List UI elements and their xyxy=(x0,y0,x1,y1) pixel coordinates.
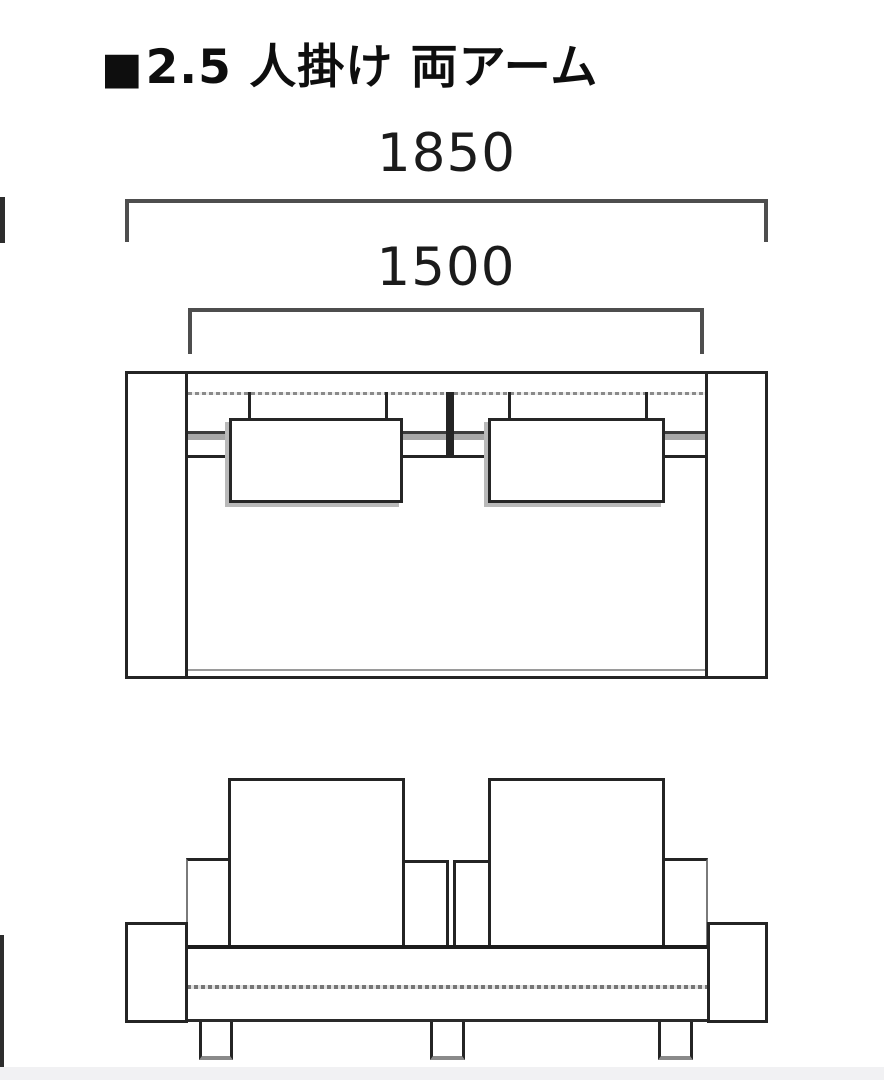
sofa-dimension-diagram: ■2.5 人掛け 両アーム 1850 1500 xyxy=(0,0,884,1080)
front-right-armrest xyxy=(707,922,768,1023)
plan-backrest-rail xyxy=(665,455,705,458)
front-left-armrest xyxy=(125,922,188,1023)
overall-width-value: 1850 xyxy=(125,127,768,180)
front-center-divider xyxy=(446,860,456,949)
diagram-title: ■2.5 人掛け 両アーム xyxy=(101,28,861,97)
front-right-leg xyxy=(658,1019,693,1060)
left-edge-clipped-fragment xyxy=(0,935,4,1080)
plan-backrest-rail xyxy=(454,455,488,458)
front-seat-dashed-line xyxy=(187,985,708,989)
plan-backrest-rail xyxy=(403,455,446,458)
inner-width-bracket xyxy=(188,308,704,354)
plan-headrest-hanger xyxy=(248,392,251,419)
plan-right-headrest-cushion xyxy=(488,418,665,503)
plan-left-headrest-cushion xyxy=(229,418,403,503)
front-right-arm-panel xyxy=(664,858,708,949)
plan-headrest-hanger xyxy=(508,392,511,419)
front-left-leg xyxy=(199,1019,233,1060)
plan-backrest-rail xyxy=(454,431,488,440)
left-edge-clipped-fragment xyxy=(0,197,5,243)
plan-left-arm-inner-edge xyxy=(185,371,188,679)
diagram-title-text: 2.5 人掛け 両アーム xyxy=(146,40,599,95)
top-plan-view xyxy=(125,371,768,679)
plan-backrest-rail xyxy=(188,455,229,458)
plan-center-divider xyxy=(446,392,454,458)
plan-headrest-hanger xyxy=(645,392,648,419)
front-view xyxy=(125,778,768,1060)
plan-backrest-rail xyxy=(188,431,229,440)
front-right-back-cushion xyxy=(488,778,665,949)
bottom-page-strip xyxy=(0,1067,884,1080)
front-left-back-cushion xyxy=(228,778,405,949)
plan-backrest-rail xyxy=(403,431,446,440)
square-bullet-icon: ■ xyxy=(101,43,144,94)
inner-width-value: 1500 xyxy=(188,241,704,294)
front-left-arm-panel xyxy=(186,858,230,949)
plan-front-inner-edge xyxy=(188,669,705,671)
plan-right-arm-inner-edge xyxy=(705,371,708,679)
front-center-leg xyxy=(430,1019,465,1060)
plan-headrest-hanger xyxy=(385,392,388,419)
overall-width-bracket xyxy=(125,199,768,242)
plan-backrest-rail xyxy=(665,431,705,440)
front-seat-base xyxy=(187,945,708,1022)
